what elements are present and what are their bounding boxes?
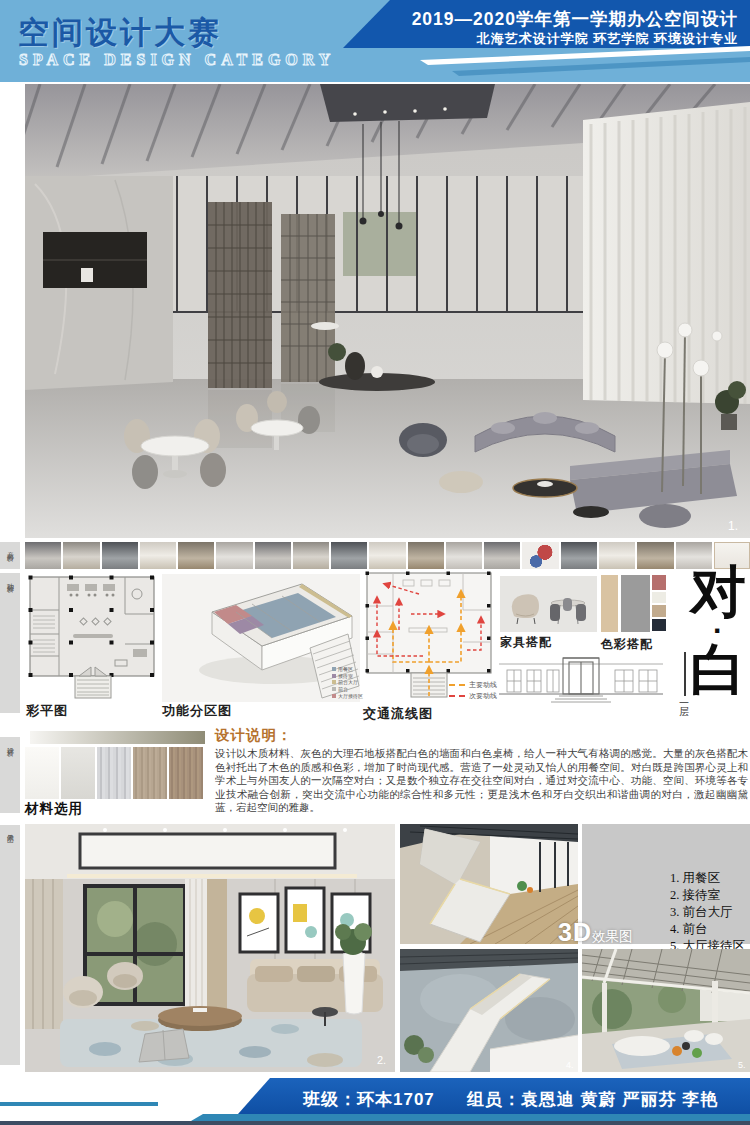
competition-title: 空间设计大赛 (18, 12, 222, 54)
footer-navy-strip (0, 1121, 750, 1125)
render-list-item: 4. 前台 (670, 921, 750, 938)
thumbnail-image (599, 542, 635, 569)
traffic-legend: 主要动线 次要动线 (449, 679, 497, 701)
materials-label: 材料选用 (25, 800, 83, 818)
thumbnail-image (522, 542, 558, 569)
theme-title-vertical: 对 · 白 (686, 560, 750, 702)
palette-swatch-beige (601, 575, 618, 632)
materials-gradient-bar (30, 731, 205, 744)
members-label: 组员：袁恩迪 黄蔚 严丽芬 李艳 (467, 1088, 718, 1111)
side-tab-renders: 效果图 (0, 825, 20, 1065)
overlay-3d-big: 3D (558, 918, 592, 946)
footer-teal-band (0, 1114, 750, 1121)
palette-chip-navy (652, 619, 666, 631)
material-swatches (25, 747, 205, 799)
school-info: 北海艺术设计学院 环艺学院 环境设计专业 (477, 30, 738, 48)
competition-subtitle-en: SPACE DESIGN CATEGORY (19, 51, 335, 69)
thumbnail-image (331, 542, 367, 569)
theme-dot: · (686, 624, 750, 638)
legend-label: 次要动线 (469, 691, 497, 701)
render-number: 2. (377, 1054, 386, 1066)
palette-swatch-gray (621, 575, 650, 632)
render-list-item: 2. 接待室 (670, 887, 750, 904)
side-tab-label: 意向分析 (5, 546, 15, 569)
side-tab-label: 效果图 (5, 829, 15, 1065)
render-living-room: 2. (25, 824, 395, 1072)
footer-blue-band: 班级：环本1707 组员：袁恩迪 黄蔚 严丽芬 李艳 (0, 1078, 750, 1114)
description-body: 设计以木质材料、灰色的大理石地板搭配白色的墙面和白色桌椅，给人一种大气有格调的感… (215, 747, 748, 815)
zoning-label: 功能分区图 (162, 702, 232, 720)
floor-note: 一 层 (676, 698, 692, 716)
side-tab-function: 功能分析 (0, 573, 20, 713)
thumbnail-image (637, 542, 673, 569)
class-label: 班级：环本1707 (303, 1088, 435, 1111)
partition-screens (208, 202, 335, 388)
material-swatch-white (25, 747, 59, 799)
thumbnail-image (140, 542, 176, 569)
overlay-3d-label: 3D效果图 (558, 918, 632, 947)
legend-label: 前台大厅 (338, 679, 358, 685)
thumbnail-image (484, 542, 520, 569)
overlay-3d-suffix: 效果图 (592, 929, 633, 944)
thumbnail-image (102, 542, 138, 569)
render-corridor: 3. (400, 824, 578, 944)
footer-bar: 班级：环本1707 组员：袁恩迪 黄蔚 严丽芬 李艳 (0, 1076, 750, 1125)
legend-swatch (332, 680, 336, 684)
thumbnail-image (369, 542, 405, 569)
legend-label: 接待室 (338, 673, 353, 679)
thumbnail-image (216, 542, 252, 569)
thumbnail-image (293, 542, 329, 569)
side-tab-label: 功能分析 (5, 577, 15, 713)
hero-illustration: 1. (25, 84, 750, 538)
thumbnail-image (255, 542, 291, 569)
theme-char-bottom: 白 (686, 638, 750, 702)
thumbnail-image (25, 542, 61, 569)
furniture-label: 家具搭配 (500, 634, 552, 651)
render-list-item: 1. 用餐区 (670, 870, 750, 887)
legend-swatch (332, 687, 336, 691)
floor-note-char: 层 (679, 706, 689, 717)
legend-swatch (332, 667, 336, 671)
coffee-table (158, 1006, 242, 1031)
hero-photo-number: 1. (728, 519, 738, 533)
main-route-dash (449, 684, 465, 686)
floor-plan-label: 彩平图 (26, 702, 68, 720)
thumbnail-image (561, 542, 597, 569)
material-swatch-marble (97, 747, 131, 799)
legend-swatch (332, 674, 336, 678)
legend-swatch (332, 694, 336, 698)
palette-chip-tan (652, 605, 666, 617)
poster-page: 空间设计大赛 SPACE DESIGN CATEGORY 2019—2020学年… (0, 0, 750, 1125)
footer-teal-line (0, 1102, 158, 1106)
side-tab-intent: 意向分析 (0, 542, 20, 569)
floor-plan-figure (25, 574, 160, 700)
legend-label: 用餐区 (338, 666, 353, 672)
hero-render-image: 1. (25, 84, 750, 538)
elevation-figure (497, 650, 665, 705)
traffic-label: 交通流线图 (363, 705, 433, 723)
theme-divider-line (684, 652, 686, 696)
thumbnail-image (446, 542, 482, 569)
thumbnail-image (178, 542, 214, 569)
ceiling-track (320, 84, 495, 122)
legend-item: 主要动线 (449, 679, 497, 690)
legend-label: 大厅接待区 (338, 693, 363, 699)
palette-chip-cream (652, 592, 666, 603)
legend-item: 次要动线 (449, 690, 497, 701)
thumbnail-image (63, 542, 99, 569)
render-patio: 5. (582, 949, 750, 1072)
material-swatch-brown-wood (169, 747, 203, 799)
secondary-route-dash (449, 695, 465, 697)
material-swatch-greige-wood (133, 747, 167, 799)
side-tab-label: 设计分析 (5, 741, 15, 813)
render-list: 1. 用餐区 2. 接待室 3. 前台大厅 4. 前台 5. 大厅接待区 (670, 870, 750, 955)
material-swatch-lightgray (61, 747, 95, 799)
render-number: 4. (566, 1060, 574, 1070)
render-list-item: 3. 前台大厅 (670, 904, 750, 921)
thumbnail-image (408, 542, 444, 569)
zoning-figure (162, 574, 360, 702)
side-tab-design: 设计分析 (0, 737, 20, 813)
course-title: 2019—2020学年第一学期办公空间设计 (412, 7, 738, 31)
description-title: 设计说明： (215, 726, 293, 745)
curtain-wall (583, 102, 750, 404)
thumbnail-strip (25, 542, 750, 569)
render-number: 5. (738, 1060, 746, 1070)
render-stair: 4. (400, 949, 578, 1072)
palette-chip-rose (652, 575, 666, 590)
header-banner: 空间设计大赛 SPACE DESIGN CATEGORY 2019—2020学年… (0, 0, 750, 82)
furniture-figure (500, 576, 597, 632)
legend-label: 主要动线 (469, 680, 497, 690)
legend-label: 前台 (338, 686, 348, 692)
